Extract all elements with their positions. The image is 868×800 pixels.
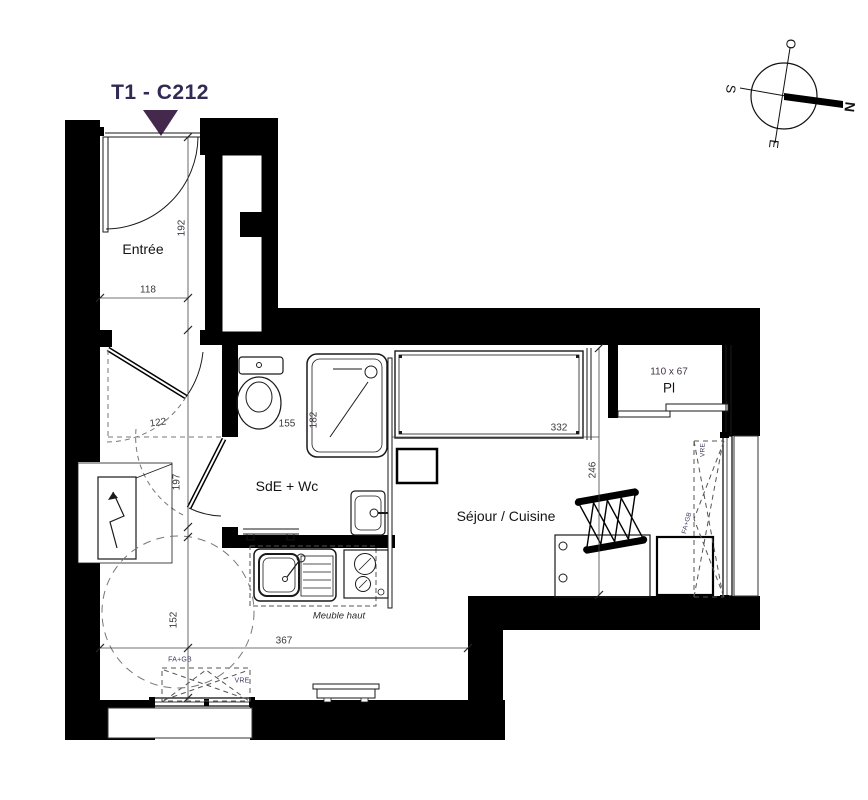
dim-entree-height: 192: [177, 220, 188, 237]
entry-marker-triangle: [143, 110, 178, 136]
window-bottom-shutter-label: VRE: [235, 678, 250, 685]
wall-radiator-icon: [313, 684, 379, 702]
hob-icon: [344, 550, 388, 598]
bathroom-partition: [388, 358, 392, 608]
room-label-entree: Entrée: [122, 241, 163, 257]
compass-north-label: N: [841, 101, 858, 113]
entrance-door: [103, 133, 200, 232]
room-label-closet: Pl: [663, 381, 675, 396]
dim-shower-width: 182: [309, 412, 320, 429]
window-right-shutter-label: VRE: [700, 443, 707, 457]
walls: [65, 118, 760, 740]
upper-cabinet-label: Meuble haut: [313, 611, 365, 622]
floor-plan-drawing: [0, 0, 868, 800]
nightstand: [397, 449, 437, 483]
chair-icon: [574, 488, 648, 554]
compass-south-label: S: [723, 84, 739, 94]
dim-living-height: 246: [588, 462, 599, 479]
dim-bed-width: 332: [551, 423, 568, 434]
window-sill: [108, 708, 252, 738]
dim-hall-height: 197: [172, 474, 183, 491]
washbasin-icon: [351, 491, 389, 535]
window-right: [694, 432, 758, 601]
dim-hall-width: 122: [149, 416, 167, 429]
compass-west-label: O: [783, 38, 799, 50]
dim-left-width: 152: [169, 612, 180, 629]
hall-door: [107, 349, 222, 442]
compass-east-label: E: [766, 139, 782, 149]
dim-bath-width: 155: [279, 419, 296, 430]
window-bottom-type-label: FA+GB: [168, 657, 192, 664]
closet-size-label: 110 x 67: [650, 367, 688, 378]
bed-partition: [587, 348, 591, 440]
radiator-icon: [78, 463, 172, 563]
compass-rose: [740, 48, 843, 143]
room-label-living: Séjour / Cuisine: [457, 508, 556, 524]
plan-title: T1 - C212: [111, 81, 209, 105]
toilet-icon: [237, 357, 283, 429]
duct-shaft: [222, 155, 262, 332]
floor-plan: T1 - C212 Entrée SdE + Wc Séjour / Cuisi…: [0, 0, 868, 800]
kitchen-sink-icon: [254, 549, 336, 601]
dim-bottom-width: 367: [276, 636, 293, 647]
shower-icon: [307, 354, 387, 457]
dim-entree-width: 118: [140, 285, 156, 296]
room-label-bathroom: SdE + Wc: [256, 478, 319, 494]
